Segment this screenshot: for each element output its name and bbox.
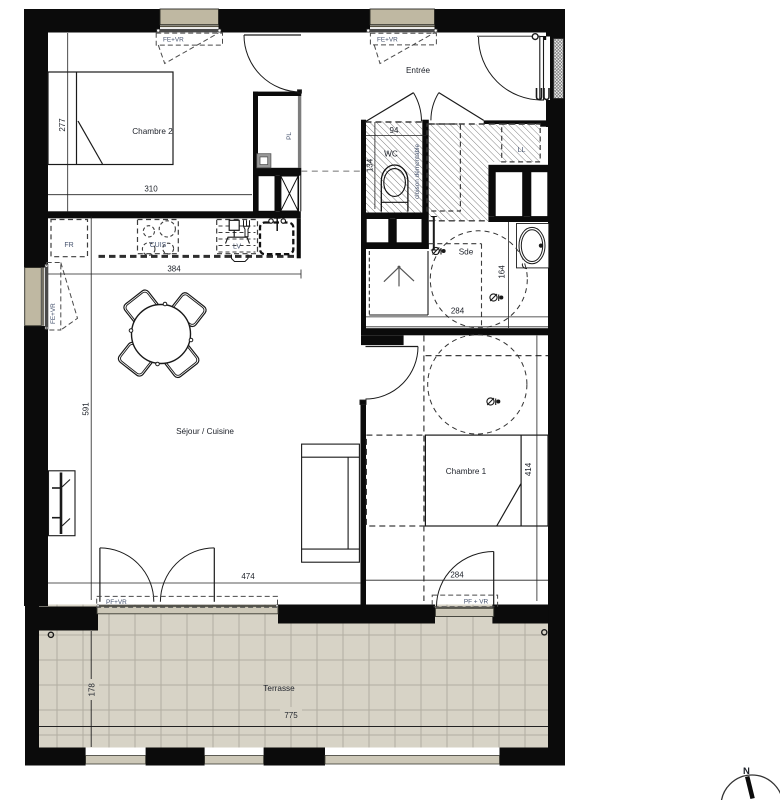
svg-text:WC: WC [384,150,398,159]
svg-text:284: 284 [450,570,464,579]
svg-text:PL: PL [286,132,293,140]
svg-text:164: 164 [498,265,507,279]
svg-text:LV: LV [233,244,241,251]
svg-text:FE+VR: FE+VR [377,37,398,44]
svg-text:N: N [743,766,750,777]
svg-text:134: 134 [366,158,375,172]
svg-text:310: 310 [144,185,158,194]
svg-text:FE+VR: FE+VR [163,37,184,44]
svg-text:Terrasse: Terrasse [263,684,295,693]
svg-text:591: 591 [82,402,91,416]
svg-text:277: 277 [58,118,67,132]
svg-text:474: 474 [241,572,255,581]
svg-text:PF + VR: PF + VR [464,598,489,605]
svg-text:PF+VR: PF+VR [106,599,127,606]
svg-text:Chambre 1: Chambre 1 [446,467,487,476]
svg-text:775: 775 [284,711,298,720]
svg-text:cloison démontable: cloison démontable [414,144,421,200]
svg-text:414: 414 [524,462,533,476]
svg-text:FR: FR [64,242,73,249]
svg-text:CUIS: CUIS [150,242,167,249]
svg-text:178: 178 [88,683,97,697]
svg-text:Séjour / Cuisine: Séjour / Cuisine [176,427,234,436]
svg-text:Sde: Sde [459,248,474,257]
svg-text:LL: LL [518,147,526,154]
svg-text:94: 94 [390,126,399,135]
svg-text:384: 384 [167,264,181,273]
svg-text:284: 284 [451,307,465,316]
svg-text:Chambre 2: Chambre 2 [132,127,173,136]
svg-text:Entrée: Entrée [406,66,431,75]
svg-text:FE+VR: FE+VR [50,303,57,324]
